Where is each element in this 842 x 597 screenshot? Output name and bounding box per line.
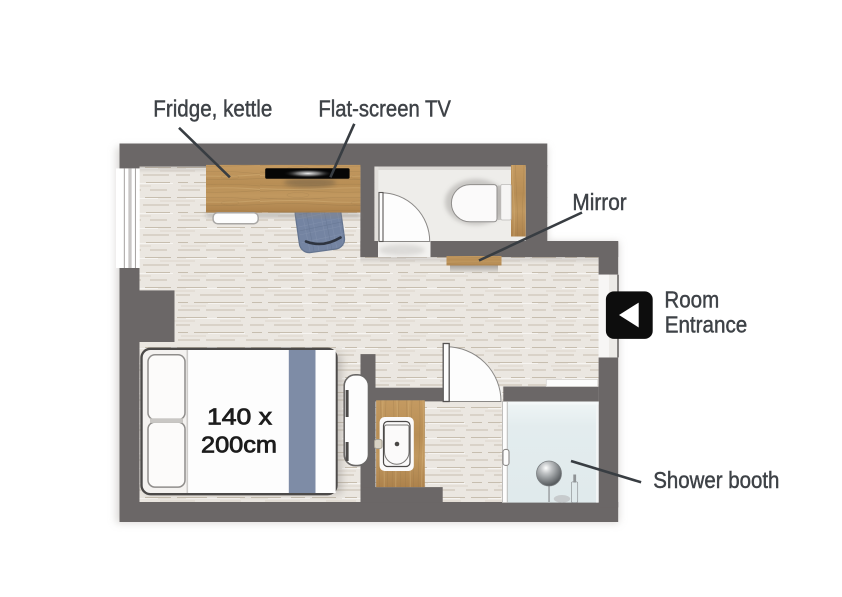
svg-text:Entrance: Entrance xyxy=(665,311,748,337)
svg-text:140 x: 140 x xyxy=(207,404,272,430)
svg-text:200cm: 200cm xyxy=(201,431,277,457)
svg-text:Fridge, kettle: Fridge, kettle xyxy=(153,95,272,121)
svg-text:Shower booth: Shower booth xyxy=(653,467,779,493)
svg-text:Room: Room xyxy=(664,286,719,312)
svg-text:Flat-screen TV: Flat-screen TV xyxy=(318,95,451,121)
svg-text:Mirror: Mirror xyxy=(572,189,627,215)
